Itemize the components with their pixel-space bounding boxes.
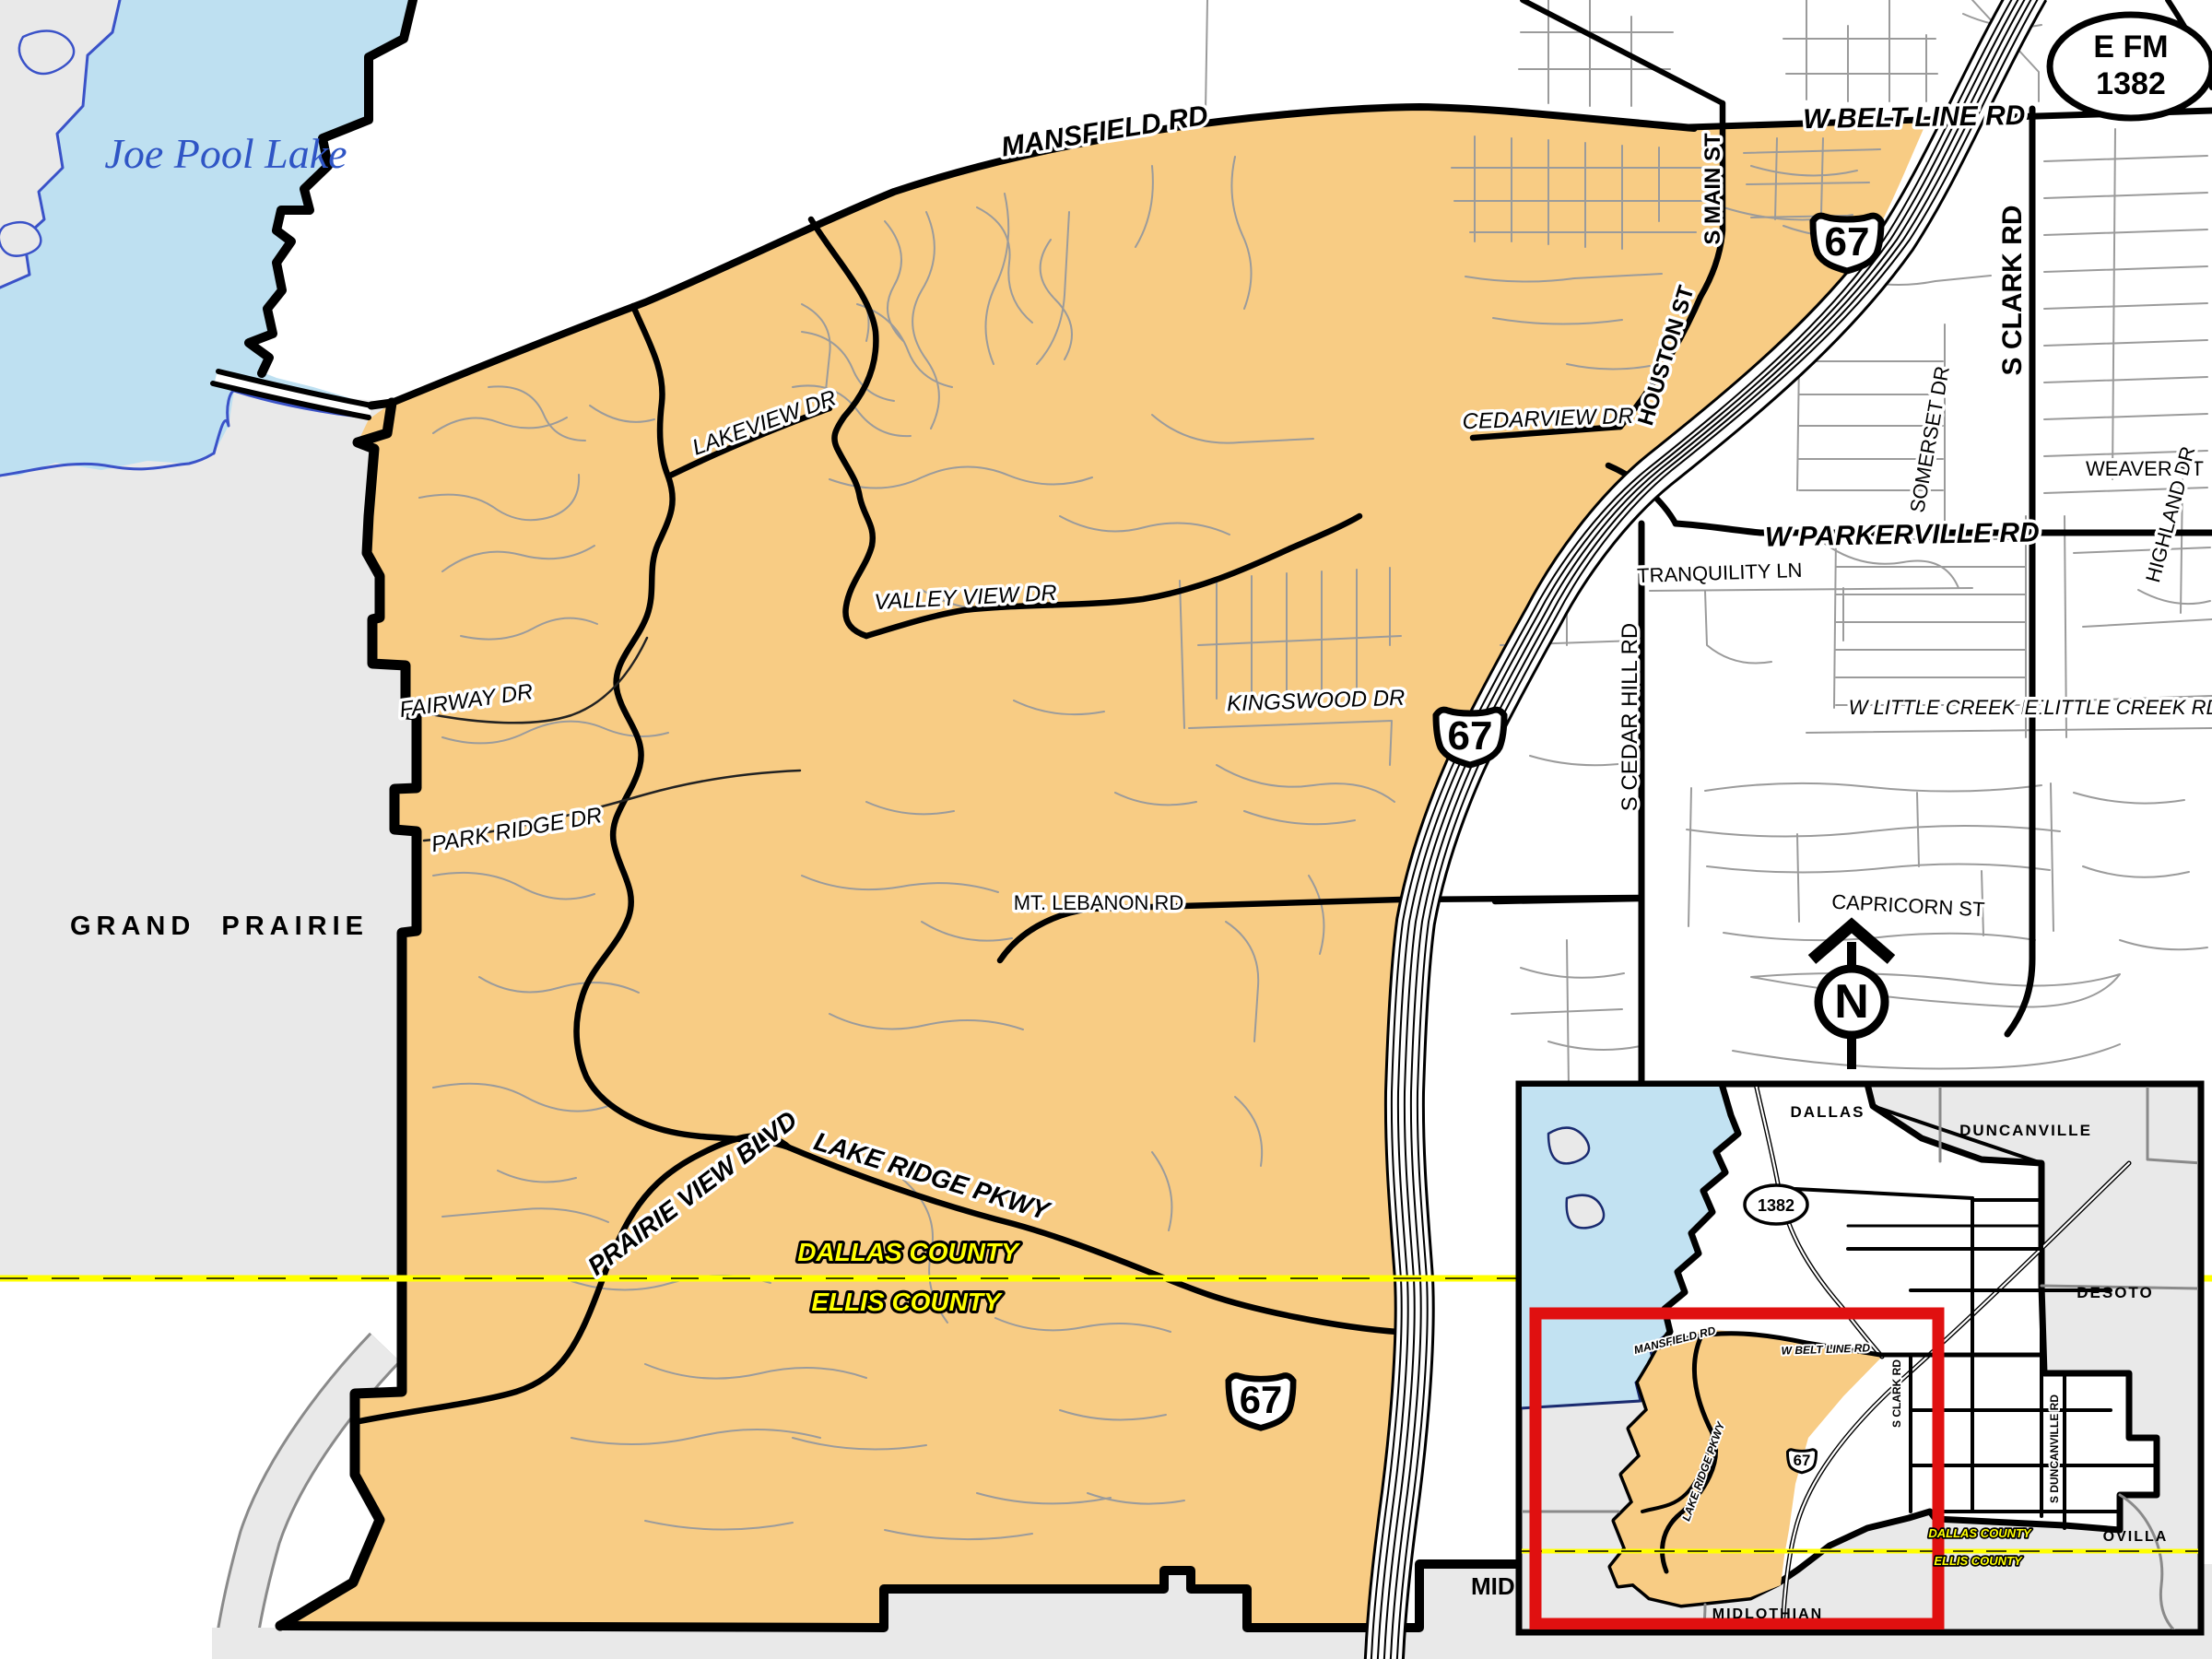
svg-text:ELLIS COUNTY: ELLIS COUNTY	[811, 1288, 1003, 1316]
svg-text:DALLAS: DALLAS	[1791, 1103, 1865, 1121]
svg-text:DUNCANVILLE: DUNCANVILLE	[1959, 1122, 2092, 1139]
svg-text:OVILLA: OVILLA	[2103, 1529, 2169, 1545]
svg-text:ELLIS COUNTY: ELLIS COUNTY	[1934, 1554, 2023, 1568]
svg-text:S CLARK RD: S CLARK RD	[1890, 1359, 1903, 1428]
svg-text:MT. LEBANON RD: MT. LEBANON RD	[1014, 891, 1184, 914]
svg-text:W BELT LINE RD: W BELT LINE RD	[1803, 100, 2026, 135]
svg-text:67: 67	[1794, 1452, 1811, 1469]
svg-text:DESOTO: DESOTO	[2077, 1284, 2153, 1301]
svg-text:E FM: E FM	[2093, 29, 2168, 65]
svg-text:S CEDAR HILL RD: S CEDAR HILL RD	[1618, 623, 1642, 812]
svg-text:GRAND PRAIRIE: GRAND PRAIRIE	[70, 912, 369, 941]
svg-text:Joe Pool Lake: Joe Pool Lake	[104, 130, 347, 177]
svg-text:67: 67	[1825, 219, 1870, 265]
svg-text:DALLAS COUNTY: DALLAS COUNTY	[797, 1238, 1020, 1266]
svg-text:S DUNCANVILLE RD: S DUNCANVILLE RD	[2048, 1394, 2061, 1503]
svg-text:MIDLOTHIAN: MIDLOTHIAN	[1712, 1606, 1823, 1622]
svg-text:DALLAS COUNTY: DALLAS COUNTY	[1928, 1526, 2032, 1540]
svg-text:S MAIN ST: S MAIN ST	[1700, 133, 1725, 245]
svg-text:1382: 1382	[2096, 66, 2166, 101]
svg-text:S CLARK RD: S CLARK RD	[1997, 206, 2028, 376]
svg-text:1382: 1382	[1758, 1196, 1794, 1215]
svg-text:67: 67	[1448, 713, 1493, 759]
svg-text:W LITTLE CREEK RD: W LITTLE CREEK RD	[1849, 696, 2051, 719]
svg-text:W PARKERVILLE RD: W PARKERVILLE RD	[1765, 517, 2040, 552]
svg-text:E LITTLE CREEK RD: E LITTLE CREEK RD	[2025, 696, 2212, 719]
svg-text:N: N	[1834, 975, 1869, 1029]
svg-text:67: 67	[1240, 1378, 1283, 1421]
